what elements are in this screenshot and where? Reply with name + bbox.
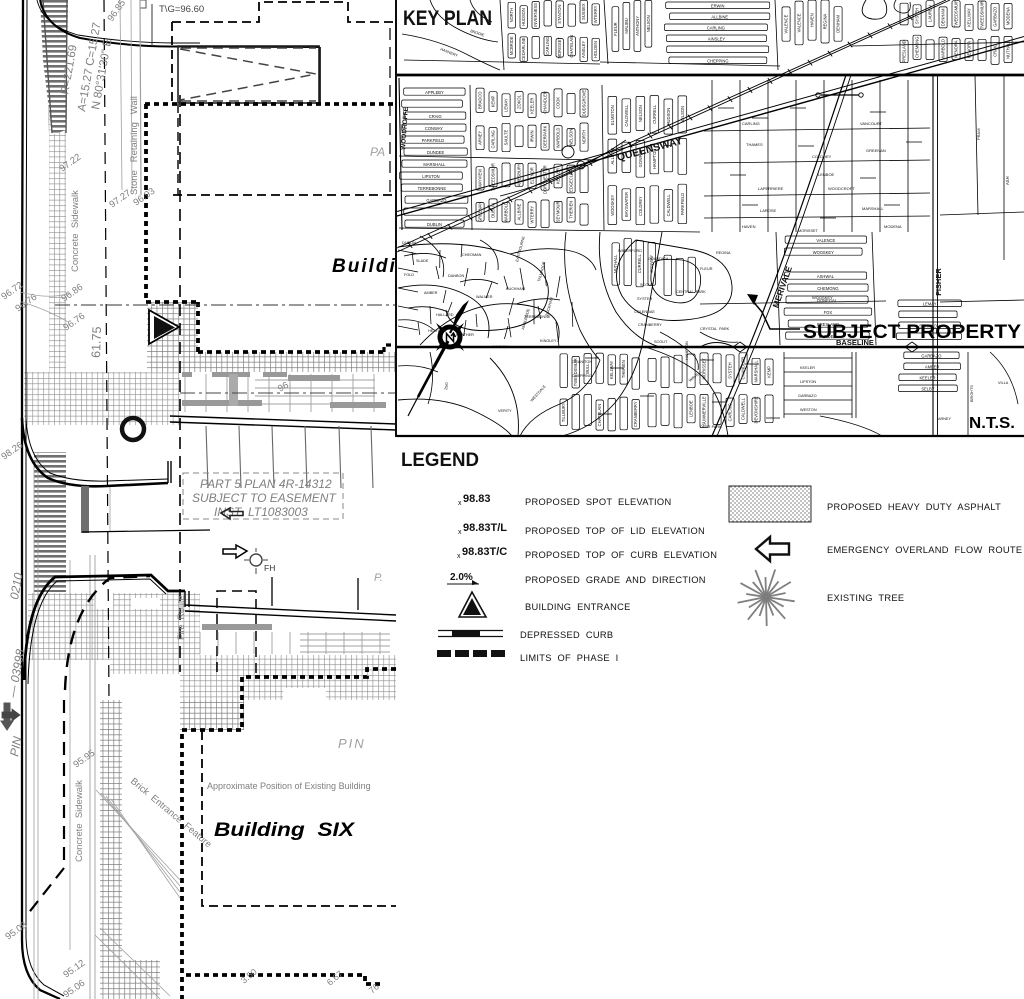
- svg-text:VERITY: VERITY: [498, 409, 512, 413]
- svg-text:INVERNESS: INVERNESS: [533, 3, 538, 27]
- svg-text:SYSTEH: SYSTEH: [728, 362, 733, 378]
- svg-text:BULL: BULL: [585, 363, 590, 374]
- svg-text:HAVEN: HAVEN: [810, 13, 815, 27]
- svg-text:FOX: FOX: [824, 310, 833, 315]
- svg-text:CARLING: CARLING: [728, 403, 733, 421]
- svg-text:Stone Retaining Wall: Stone Retaining Wall: [129, 96, 140, 195]
- svg-text:WOOSKEY: WOOSKEY: [610, 194, 615, 215]
- svg-text:LENBOE: LENBOE: [689, 400, 694, 417]
- svg-text:N.T.S.: N.T.S.: [969, 415, 1015, 432]
- svg-text:Building SIX: Building SIX: [214, 820, 356, 841]
- svg-text:PRESLAND: PRESLAND: [902, 40, 907, 62]
- svg-text:CENTRAL PARK: CENTRAL PARK: [676, 290, 706, 294]
- svg-text:MORISSET: MORISSET: [798, 229, 819, 233]
- svg-text:COLDREY: COLDREY: [638, 196, 643, 216]
- svg-text:TWEEDSMUIR: TWEEDSMUIR: [491, 163, 496, 191]
- svg-text:CURRELL: CURRELL: [652, 104, 657, 124]
- svg-text:CHEPPING: CHEPPING: [707, 59, 728, 64]
- svg-text:Concrete Sidewalk: Concrete Sidewalk: [70, 190, 81, 272]
- svg-text:x: x: [457, 553, 461, 560]
- svg-text:CHEOMAN: CHEOMAN: [462, 253, 482, 257]
- svg-text:MAYVIEW: MAYVIEW: [478, 169, 483, 188]
- svg-text:CALDWELL: CALDWELL: [666, 194, 671, 217]
- svg-text:KEELER: KEELER: [800, 366, 815, 370]
- svg-text:WESTON: WESTON: [800, 408, 817, 412]
- svg-text:x: x: [458, 529, 462, 536]
- svg-text:FOLD: FOLD: [404, 273, 414, 277]
- svg-text:LIPSTON: LIPSTON: [422, 174, 439, 179]
- svg-text:LEGEND: LEGEND: [401, 450, 479, 471]
- svg-text:WOOSKEY: WOOSKEY: [813, 250, 834, 255]
- svg-text:ARNEY: ARNEY: [938, 417, 952, 421]
- svg-text:AMBER: AMBER: [424, 291, 438, 295]
- svg-text:PROPOSED GRADE AND DIRECTIO: PROPOSED GRADE AND DIRECTION: [525, 575, 706, 585]
- svg-text:THERIEN: THERIEN: [621, 360, 626, 378]
- svg-text:FISHER: FISHER: [934, 268, 943, 296]
- svg-text:LIMITS OF PHASE I: LIMITS OF PHASE I: [520, 653, 618, 663]
- svg-text:NELSON: NELSON: [646, 15, 651, 32]
- svg-text:CHANDLER: CHANDLER: [543, 91, 548, 114]
- svg-text:APPLEBY: APPLEBY: [425, 90, 444, 95]
- svg-text:PARKFIELD: PARKFIELD: [422, 138, 444, 143]
- svg-text:NORTH: NORTH: [582, 130, 587, 145]
- svg-text:WTERRY: WTERRY: [530, 206, 535, 224]
- svg-text:x: x: [458, 500, 462, 507]
- svg-text:MODENA: MODENA: [1006, 7, 1011, 25]
- svg-text:WOODCROFT: WOODCROFT: [828, 186, 855, 191]
- svg-text:NELSON: NELSON: [569, 129, 574, 146]
- svg-text:BUCKHAM: BUCKHAM: [506, 287, 525, 291]
- svg-text:CHANDLER: CHANDLER: [741, 357, 746, 380]
- svg-text:DEVONSHIRE: DEVONSHIRE: [754, 396, 759, 423]
- svg-text:SUMMERVILLE: SUMMERVILLE: [702, 396, 707, 426]
- svg-text:LAPERRIERE: LAPERRIERE: [758, 186, 784, 191]
- svg-text:TWEEDSMUIR: TWEEDSMUIR: [954, 0, 959, 28]
- svg-text:LEMAY: LEMAY: [923, 302, 937, 307]
- svg-text:CEDARLINE: CEDARLINE: [521, 37, 526, 61]
- svg-text:BAYSWATER: BAYSWATER: [624, 192, 629, 217]
- svg-text:REGINA: REGINA: [716, 251, 731, 255]
- svg-text:AMBER: AMBER: [925, 365, 940, 370]
- svg-text:TILLBURY: TILLBURY: [561, 402, 566, 422]
- svg-text:HALLARD: HALLARD: [436, 313, 454, 317]
- svg-text:CHEMONG: CHEMONG: [915, 37, 920, 58]
- svg-text:KEELER: KEELER: [919, 376, 935, 381]
- svg-text:SCOUT: SCOUT: [640, 283, 654, 287]
- svg-text:GREENAN: GREENAN: [478, 202, 483, 222]
- svg-text:FH: FH: [264, 563, 275, 573]
- svg-text:HAVEN: HAVEN: [742, 224, 756, 229]
- svg-text:AINSLEY: AINSLEY: [581, 40, 586, 58]
- svg-text:COLENDAE: COLENDAE: [634, 310, 655, 314]
- svg-text:GARBAZO: GARBAZO: [921, 354, 941, 359]
- svg-text:KEMP: KEMP: [767, 366, 772, 378]
- svg-text:MODENA: MODENA: [884, 224, 902, 229]
- svg-text:SLADE: SLADE: [416, 259, 429, 263]
- svg-text:MALIBU: MALIBU: [624, 18, 629, 33]
- svg-text:PROPOSED TOP OF CURB ELEVA: PROPOSED TOP OF CURB ELEVATION: [525, 550, 717, 560]
- svg-text:NELSON: NELSON: [638, 105, 643, 122]
- svg-text:MARSHALL: MARSHALL: [754, 360, 759, 383]
- svg-text:DEER PARK: DEER PARK: [700, 425, 722, 429]
- svg-text:BUILDING ENTRANCE: BUILDING ENTRANCE: [525, 602, 631, 612]
- svg-text:CARLING: CARLING: [545, 37, 550, 55]
- svg-text:AINSLEY: AINSLEY: [708, 37, 726, 42]
- svg-text:THAMES: THAMES: [746, 142, 763, 147]
- svg-text:P.: P.: [374, 572, 383, 584]
- svg-text:61.75: 61.75: [89, 326, 104, 358]
- svg-text:GRANDICH: GRANDICH: [648, 257, 669, 261]
- svg-text:KEMP: KEMP: [491, 96, 496, 108]
- svg-text:WALMER: WALMER: [476, 295, 493, 299]
- svg-text:GARBAZO: GARBAZO: [798, 394, 817, 398]
- svg-text:ELMSTON: ELMSTON: [610, 105, 615, 125]
- svg-text:PIN: PIN: [338, 736, 366, 751]
- svg-text:CONWAY: CONWAY: [425, 126, 443, 131]
- svg-text:VALENCE: VALENCE: [816, 238, 835, 243]
- svg-text:T\G=96.60: T\G=96.60: [159, 4, 204, 15]
- svg-text:WTERRY: WTERRY: [593, 5, 598, 23]
- svg-text:SUBJECT TO EASEMENT: SUBJECT TO EASEMENT: [192, 491, 337, 505]
- svg-text:ERWIN: ERWIN: [711, 4, 725, 9]
- svg-text:ELENOR: ELENOR: [530, 167, 535, 184]
- svg-text:DUBLIN: DUBLIN: [427, 222, 442, 227]
- svg-text:LENBOE: LENBOE: [818, 172, 835, 177]
- svg-text:SCOUT: SCOUT: [654, 340, 668, 344]
- svg-text:PARKFIELD: PARKFIELD: [680, 193, 685, 215]
- svg-text:PROPOSED HEAVY DUTY ASPHALT: PROPOSED HEAVY DUTY ASPHALT: [827, 502, 1001, 512]
- svg-text:DANBON: DANBON: [448, 274, 465, 278]
- svg-text:CHEMONG: CHEMONG: [817, 286, 838, 291]
- svg-text:BRIGHTS: BRIGHTS: [970, 385, 974, 402]
- svg-text:ZOKOL: ZOKOL: [517, 94, 522, 109]
- svg-text:MARSHALL: MARSHALL: [862, 206, 884, 211]
- svg-text:PART 5 PLAN 4R-14312: PART 5 PLAN 4R-14312: [200, 477, 332, 491]
- svg-text:ASH: ASH: [1005, 176, 1010, 185]
- svg-text:SUBJECT PROPERTY: SUBJECT PROPERTY: [803, 321, 1021, 343]
- svg-text:WARBOLD: WARBOLD: [556, 128, 561, 149]
- svg-text:CARLING: CARLING: [707, 26, 725, 31]
- svg-text:CRANBERRY: CRANBERRY: [638, 323, 662, 327]
- svg-text:SUSSEX: SUSSEX: [581, 3, 586, 20]
- svg-text:LAROSE: LAROSE: [760, 208, 777, 213]
- svg-text:DENHAM: DENHAM: [836, 14, 841, 32]
- svg-text:NUTHALL: NUTHALL: [613, 254, 618, 273]
- svg-text:VALENCE: VALENCE: [784, 14, 789, 33]
- svg-text:KELLWAY: KELLWAY: [609, 360, 614, 379]
- svg-text:2.0%: 2.0%: [450, 572, 473, 583]
- svg-text:98.83T/C: 98.83T/C: [462, 546, 507, 558]
- svg-text:Buildi: Buildi: [332, 256, 397, 277]
- svg-text:DEPRESSED CURB: DEPRESSED CURB: [520, 630, 613, 640]
- svg-text:CRANBERRY: CRANBERRY: [633, 401, 638, 427]
- svg-text:ALLBINE: ALLBINE: [517, 203, 522, 220]
- svg-text:VALENCE: VALENCE: [797, 13, 802, 32]
- svg-text:SEYMOUR: SEYMOUR: [556, 202, 561, 223]
- svg-text:98.83: 98.83: [463, 493, 491, 505]
- svg-text:WARBOLD: WARBOLD: [941, 39, 946, 60]
- svg-text:PROPOSED SPOT ELEVATION: PROPOSED SPOT ELEVATION: [525, 497, 671, 507]
- svg-text:SAULTE: SAULTE: [504, 129, 509, 145]
- svg-text:CHEPPING: CHEPPING: [572, 374, 592, 378]
- svg-text:KEELER: KEELER: [530, 98, 535, 114]
- svg-text:98.83T/L: 98.83T/L: [463, 522, 507, 534]
- svg-text:TERREBONNE: TERREBONNE: [418, 186, 447, 191]
- svg-text:WARBOLD: WARBOLD: [504, 202, 509, 223]
- svg-text:MORISSET: MORISSET: [702, 358, 707, 380]
- svg-text:TWEEDSMUIR: TWEEDSMUIR: [980, 1, 985, 29]
- svg-text:CARLING: CARLING: [491, 130, 496, 148]
- svg-text:KELLWAY: KELLWAY: [967, 8, 972, 27]
- svg-text:ALLBINE: ALLBINE: [711, 15, 728, 20]
- svg-text:ASHWAL: ASHWAL: [817, 274, 835, 279]
- svg-text:DENHAM: DENHAM: [941, 8, 946, 26]
- svg-text:EMERGENCY OVERLAND FLOW ROU: EMERGENCY OVERLAND FLOW ROUTE: [827, 545, 1022, 555]
- svg-text:HUDSON: HUDSON: [666, 108, 671, 126]
- svg-text:LEMAY: LEMAY: [504, 98, 509, 112]
- svg-text:WOOSKEY: WOOSKEY: [812, 295, 833, 300]
- svg-text:CARLING: CARLING: [742, 121, 760, 126]
- svg-text:PRAM: PRAM: [976, 128, 981, 140]
- svg-text:BRADCO: BRADCO: [478, 92, 483, 110]
- svg-text:Approximate Position of Existi: Approximate Position of Existing Buildin…: [207, 781, 371, 791]
- svg-text:FLEUR: FLEUR: [700, 267, 713, 271]
- svg-text:GRANITON: GRANITON: [572, 360, 592, 364]
- svg-text:WATERFORD: WATERFORD: [618, 249, 642, 253]
- svg-text:COOK: COOK: [556, 97, 561, 109]
- svg-text:VANCOURT: VANCOURT: [860, 121, 883, 126]
- svg-text:MARSHALL: MARSHALL: [423, 162, 446, 167]
- svg-text:MORISSET: MORISSET: [557, 37, 562, 59]
- svg-text:NORTH: NORTH: [509, 8, 514, 23]
- svg-text:EXISTING TREE: EXISTING TREE: [827, 593, 904, 603]
- svg-text:REGINA: REGINA: [823, 13, 828, 29]
- svg-text:STANTON: STANTON: [557, 5, 562, 24]
- svg-text:THERIEN: THERIEN: [569, 201, 574, 219]
- svg-text:KINGLEY: KINGLEY: [540, 339, 557, 343]
- svg-text:VILLA: VILLA: [998, 381, 1009, 385]
- svg-text:DUNDEE: DUNDEE: [427, 150, 445, 155]
- svg-text:PROPOSED TOP OF LID ELEVAT: PROPOSED TOP OF LID ELEVATION: [525, 526, 705, 536]
- svg-text:KEY PLAN: KEY PLAN: [403, 7, 492, 30]
- svg-text:CRAIG: CRAIG: [993, 44, 998, 57]
- svg-text:CHATELAIN: CHATELAIN: [597, 404, 602, 427]
- svg-text:LIPSTON: LIPSTON: [800, 380, 816, 384]
- svg-text:COLDREY: COLDREY: [812, 154, 832, 159]
- svg-text:HUDSON: HUDSON: [521, 8, 526, 26]
- svg-text:GARBAZO: GARBAZO: [993, 7, 998, 27]
- svg-text:DUDSGROVE: DUDSGROVE: [582, 90, 587, 117]
- svg-text:HOLDEN: HOLDEN: [593, 41, 598, 58]
- svg-text:IRWIN: IRWIN: [530, 130, 535, 142]
- svg-text:CHATELAIN: CHATELAIN: [569, 35, 574, 58]
- svg-text:DEERPARK: DEERPARK: [543, 125, 548, 147]
- svg-text:GREENAN: GREENAN: [866, 148, 886, 153]
- svg-text:ARNEY: ARNEY: [478, 130, 483, 144]
- svg-text:SELBY: SELBY: [921, 387, 934, 392]
- svg-text:Fire Route: Fire Route: [176, 595, 186, 640]
- svg-text:CRYSTAL PARK: CRYSTAL PARK: [700, 327, 730, 331]
- svg-text:MCBRIDE: MCBRIDE: [509, 36, 514, 55]
- svg-text:CALDWELL: CALDWELL: [741, 397, 746, 420]
- svg-text:Concrete Sidewalk: Concrete Sidewalk: [74, 780, 85, 862]
- svg-text:CURRELL: CURRELL: [637, 253, 642, 273]
- svg-text:FLEUR: FLEUR: [613, 22, 618, 35]
- svg-text:PA: PA: [370, 145, 385, 159]
- svg-text:CALDWELL: CALDWELL: [624, 104, 629, 127]
- svg-text:ANTHONY: ANTHONY: [635, 16, 640, 36]
- svg-text:CRAIG: CRAIG: [429, 114, 442, 119]
